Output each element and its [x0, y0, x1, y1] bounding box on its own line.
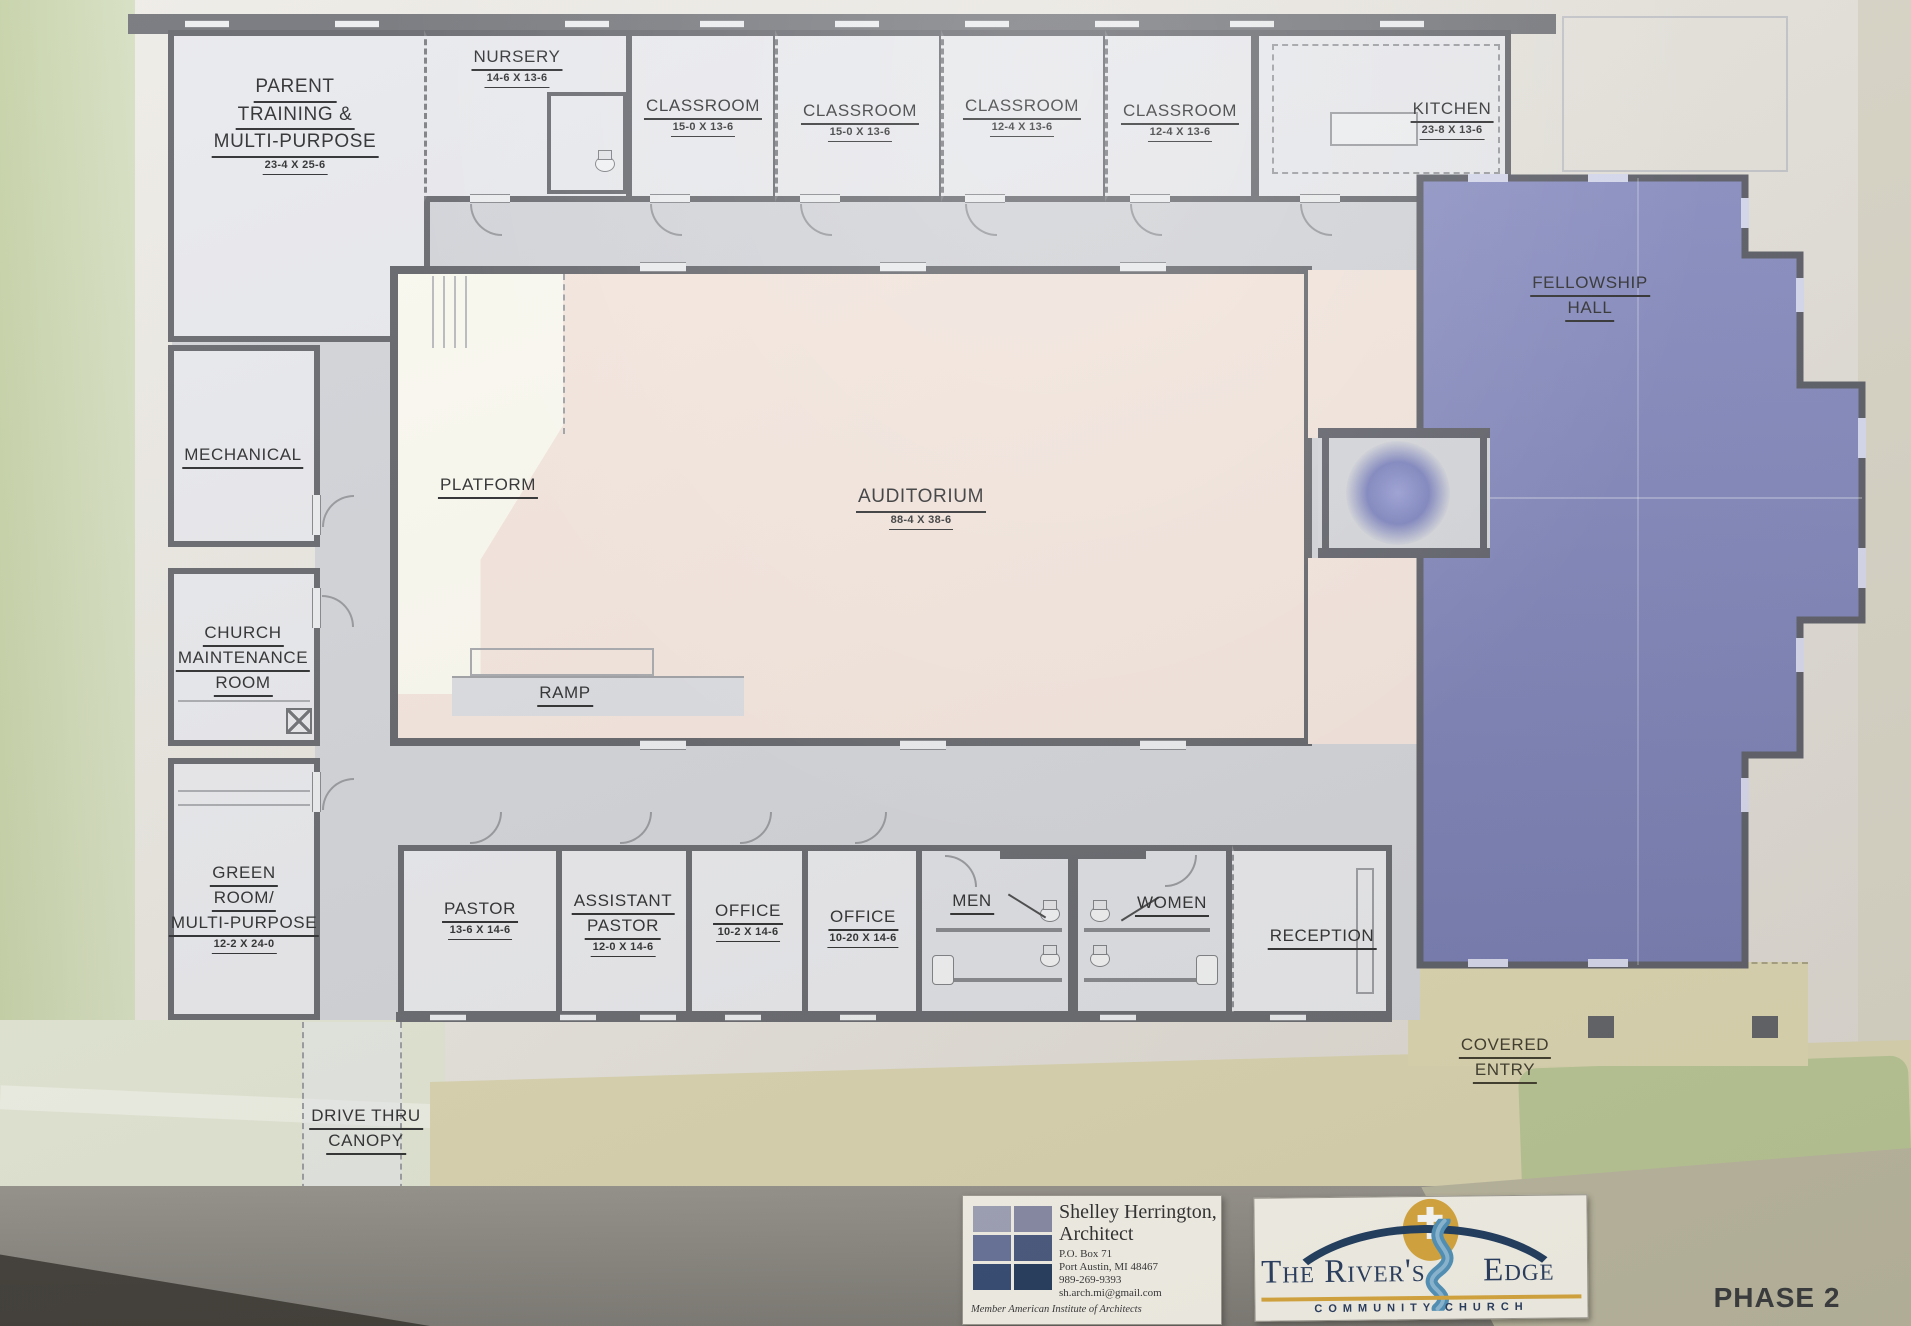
label-pastor: PASTOR 13-6 X 14-6 — [442, 898, 518, 940]
room-name: CLASSROOM — [801, 100, 919, 125]
kitchen-island — [1330, 112, 1418, 146]
door-opening — [965, 194, 1005, 203]
phase-label: PHASE 2 — [1714, 1282, 1841, 1314]
room-name: PASTOR — [442, 898, 518, 923]
logo-square — [1014, 1235, 1052, 1261]
label-mechanical: MECHANICAL — [182, 444, 303, 469]
architect-name: Shelley Herrington, — [1059, 1202, 1217, 1223]
architect-phone: 989-269-9393 — [1059, 1274, 1121, 1286]
room-name: RAMP — [537, 682, 593, 707]
sink-fixture — [932, 955, 954, 985]
ramp-strip — [452, 676, 744, 716]
vestibule-glow — [1346, 441, 1450, 545]
sink-fixture — [1196, 955, 1218, 985]
door-opening — [1140, 740, 1186, 750]
room-name: CLASSROOM — [644, 95, 762, 120]
window-opening — [1270, 1014, 1306, 1021]
window-opening — [565, 20, 609, 28]
shelf-line — [178, 700, 310, 702]
door-opening — [1120, 262, 1166, 272]
label-church-maintenance: CHURCH MAINTENANCE ROOM — [176, 622, 310, 697]
window-opening — [335, 20, 379, 28]
logo-square — [973, 1235, 1011, 1261]
door-opening — [880, 262, 926, 272]
window-opening — [700, 20, 744, 28]
label-classroom-4: CLASSROOM 12-4 X 13-6 — [1121, 100, 1239, 142]
toilet-fixture — [1040, 900, 1058, 924]
south-exterior-wall — [396, 1012, 1392, 1022]
label-nursery: NURSERY 14-6 X 13-6 — [471, 46, 562, 88]
door-opening — [640, 740, 686, 750]
floor-plan-photo: PARENT TRAINING & MULTI-PURPOSE 23-4 X 2… — [0, 0, 1911, 1326]
entry-post — [1752, 1016, 1778, 1038]
lobby-north — [1308, 270, 1420, 438]
church-logo-card: The River's Edge COMMUNITY CHURCH — [1253, 1194, 1588, 1321]
stall-partition — [1084, 928, 1210, 932]
room-name: PARENT — [253, 75, 336, 103]
window-opening — [560, 1014, 596, 1021]
room-dims: 12-4 X 13-6 — [990, 120, 1055, 137]
window-opening — [835, 20, 879, 28]
room-name: MEN — [950, 890, 994, 915]
door-opening — [312, 588, 321, 628]
room-name: PLATFORM — [438, 474, 538, 499]
shelf-line — [178, 790, 310, 792]
room-name: GREEN — [210, 862, 277, 887]
label-ramp: RAMP — [537, 682, 593, 707]
label-drive-thru-canopy: DRIVE THRU CANOPY — [309, 1105, 423, 1155]
room-dims: 14-6 X 13-6 — [485, 71, 550, 88]
room-name: TRAINING & — [236, 103, 355, 131]
label-fellowship-hall: FELLOWSHIP HALL — [1530, 272, 1650, 322]
window-opening — [1230, 20, 1274, 28]
logo-square — [973, 1264, 1011, 1290]
architect-logo-grid — [973, 1206, 1053, 1290]
vestibule-wall — [1318, 548, 1490, 558]
room-name: RECEPTION — [1268, 925, 1377, 950]
hall-roof-outline — [1562, 16, 1788, 172]
room-dims: 10-2 X 14-6 — [716, 925, 781, 942]
logo-text-right: Edge — [1483, 1252, 1555, 1290]
platform-steps — [432, 276, 474, 348]
room-name: MECHANICAL — [182, 444, 303, 469]
room-name: HALL — [1566, 297, 1615, 322]
door-opening — [470, 194, 510, 203]
room-name: PASTOR — [585, 915, 661, 940]
door-opening — [800, 194, 840, 203]
label-auditorium: AUDITORIUM 88-4 X 38-6 — [856, 485, 986, 530]
label-reception: RECEPTION — [1268, 925, 1377, 950]
room-dims: 12-4 X 13-6 — [1148, 125, 1213, 142]
sound-desk — [470, 648, 654, 676]
room-name: NURSERY — [471, 46, 562, 71]
room-dims: 12-2 X 24-0 — [212, 937, 277, 954]
room-name: DRIVE THRU — [309, 1105, 423, 1130]
room-dims: 88-4 X 38-6 — [889, 513, 954, 530]
room-name: OFFICE — [828, 906, 898, 931]
architect-member-line: Member American Institute of Architects — [971, 1304, 1142, 1315]
window-opening — [185, 20, 229, 28]
room-name: ROOM/ — [212, 887, 277, 912]
room-name: ASSISTANT — [572, 890, 675, 915]
logo-square — [1014, 1264, 1052, 1290]
vestibule-door — [1480, 438, 1487, 548]
room-name: COVERED — [1459, 1034, 1551, 1059]
room-dims: 15-0 X 13-6 — [671, 120, 736, 137]
shelf-line — [178, 804, 310, 806]
architect-address2: Port Austin, MI 48467 — [1059, 1261, 1158, 1273]
architect-card: Shelley Herrington, Architect P.O. Box 7… — [962, 1195, 1222, 1325]
label-covered-entry: COVERED ENTRY — [1459, 1034, 1551, 1084]
restroom-wall — [1000, 851, 1146, 859]
stall-partition — [1084, 978, 1210, 982]
room-name: OFFICE — [713, 900, 783, 925]
label-platform: PLATFORM — [438, 474, 538, 499]
room-name: MULTI-PURPOSE — [212, 130, 379, 158]
label-classroom-3: CLASSROOM 12-4 X 13-6 — [963, 95, 1081, 137]
architect-email: sh.arch.mi@gmail.com — [1059, 1287, 1162, 1299]
room-name: CANOPY — [326, 1130, 405, 1155]
stall-partition — [936, 978, 1062, 982]
label-men: MEN — [950, 890, 994, 915]
label-classroom-2: CLASSROOM 15-0 X 13-6 — [801, 100, 919, 142]
room-dims: 12-0 X 14-6 — [591, 940, 656, 957]
window-opening — [1095, 20, 1139, 28]
label-parent-training: PARENT TRAINING & MULTI-PURPOSE 23-4 X 2… — [212, 75, 379, 175]
logo-square — [973, 1206, 1011, 1232]
room-name: FELLOWSHIP — [1530, 272, 1650, 297]
toilet-fixture — [595, 150, 613, 174]
vestibule-door — [1322, 438, 1329, 548]
restroom-center-wall — [1068, 851, 1078, 1013]
floor-drain-symbol — [286, 708, 312, 734]
label-kitchen: KITCHEN 23-8 X 13-6 — [1411, 98, 1494, 140]
door-opening — [640, 262, 686, 272]
platform-edge-line — [563, 274, 565, 434]
room-name: MAINTENANCE — [176, 647, 310, 672]
stall-partition — [936, 928, 1062, 932]
label-classroom-1: CLASSROOM 15-0 X 13-6 — [644, 95, 762, 137]
room-name: CLASSROOM — [963, 95, 1081, 120]
entry-post — [1588, 1016, 1614, 1038]
lobby-south — [1308, 558, 1420, 744]
room-name: WOMEN — [1135, 892, 1209, 917]
room-dims: 10-20 X 14-6 — [827, 931, 898, 948]
toilet-fixture — [1090, 945, 1108, 969]
room-name: CHURCH — [202, 622, 283, 647]
room-name: ENTRY — [1473, 1059, 1537, 1084]
room-name: MULTI-PURPOSE — [169, 912, 319, 937]
label-office-1: OFFICE 10-2 X 14-6 — [713, 900, 783, 942]
room-dims: 23-4 X 25-6 — [263, 158, 328, 175]
room-dims: 23-8 X 13-6 — [1420, 123, 1485, 140]
window-opening — [965, 20, 1009, 28]
vestibule-wall — [1318, 428, 1490, 438]
room-name: AUDITORIUM — [856, 485, 986, 513]
door-opening — [312, 495, 321, 535]
toilet-fixture — [1040, 945, 1058, 969]
architect-title: Architect — [1059, 1223, 1133, 1246]
window-opening — [430, 1014, 466, 1021]
toilet-fixture — [1090, 900, 1108, 924]
window-opening — [840, 1014, 876, 1021]
door-opening — [650, 194, 690, 203]
label-assistant-pastor: ASSISTANT PASTOR 12-0 X 14-6 — [572, 890, 675, 957]
window-opening — [1100, 1014, 1136, 1021]
logo-text-left: The River's — [1261, 1253, 1426, 1292]
room-name: KITCHEN — [1411, 98, 1494, 123]
window-opening — [725, 1014, 761, 1021]
window-opening — [1380, 20, 1424, 28]
label-women: WOMEN — [1135, 892, 1209, 917]
nursery-restroom — [547, 92, 627, 194]
room-name: ROOM — [213, 672, 272, 697]
room-dims: 15-0 X 13-6 — [828, 125, 893, 142]
room-name: CLASSROOM — [1121, 100, 1239, 125]
logo-square — [1014, 1206, 1052, 1232]
label-office-2: OFFICE 10-20 X 14-6 — [827, 906, 898, 948]
room-dims: 13-6 X 14-6 — [448, 923, 513, 940]
door-opening — [900, 740, 946, 750]
label-green-room: GREEN ROOM/ MULTI-PURPOSE 12-2 X 24-0 — [169, 862, 319, 954]
architect-address1: P.O. Box 71 — [1059, 1248, 1112, 1260]
window-opening — [640, 1014, 676, 1021]
door-opening — [1130, 194, 1170, 203]
door-opening — [312, 772, 321, 812]
door-opening — [1300, 194, 1340, 203]
site-green-left-strip — [0, 0, 135, 1150]
